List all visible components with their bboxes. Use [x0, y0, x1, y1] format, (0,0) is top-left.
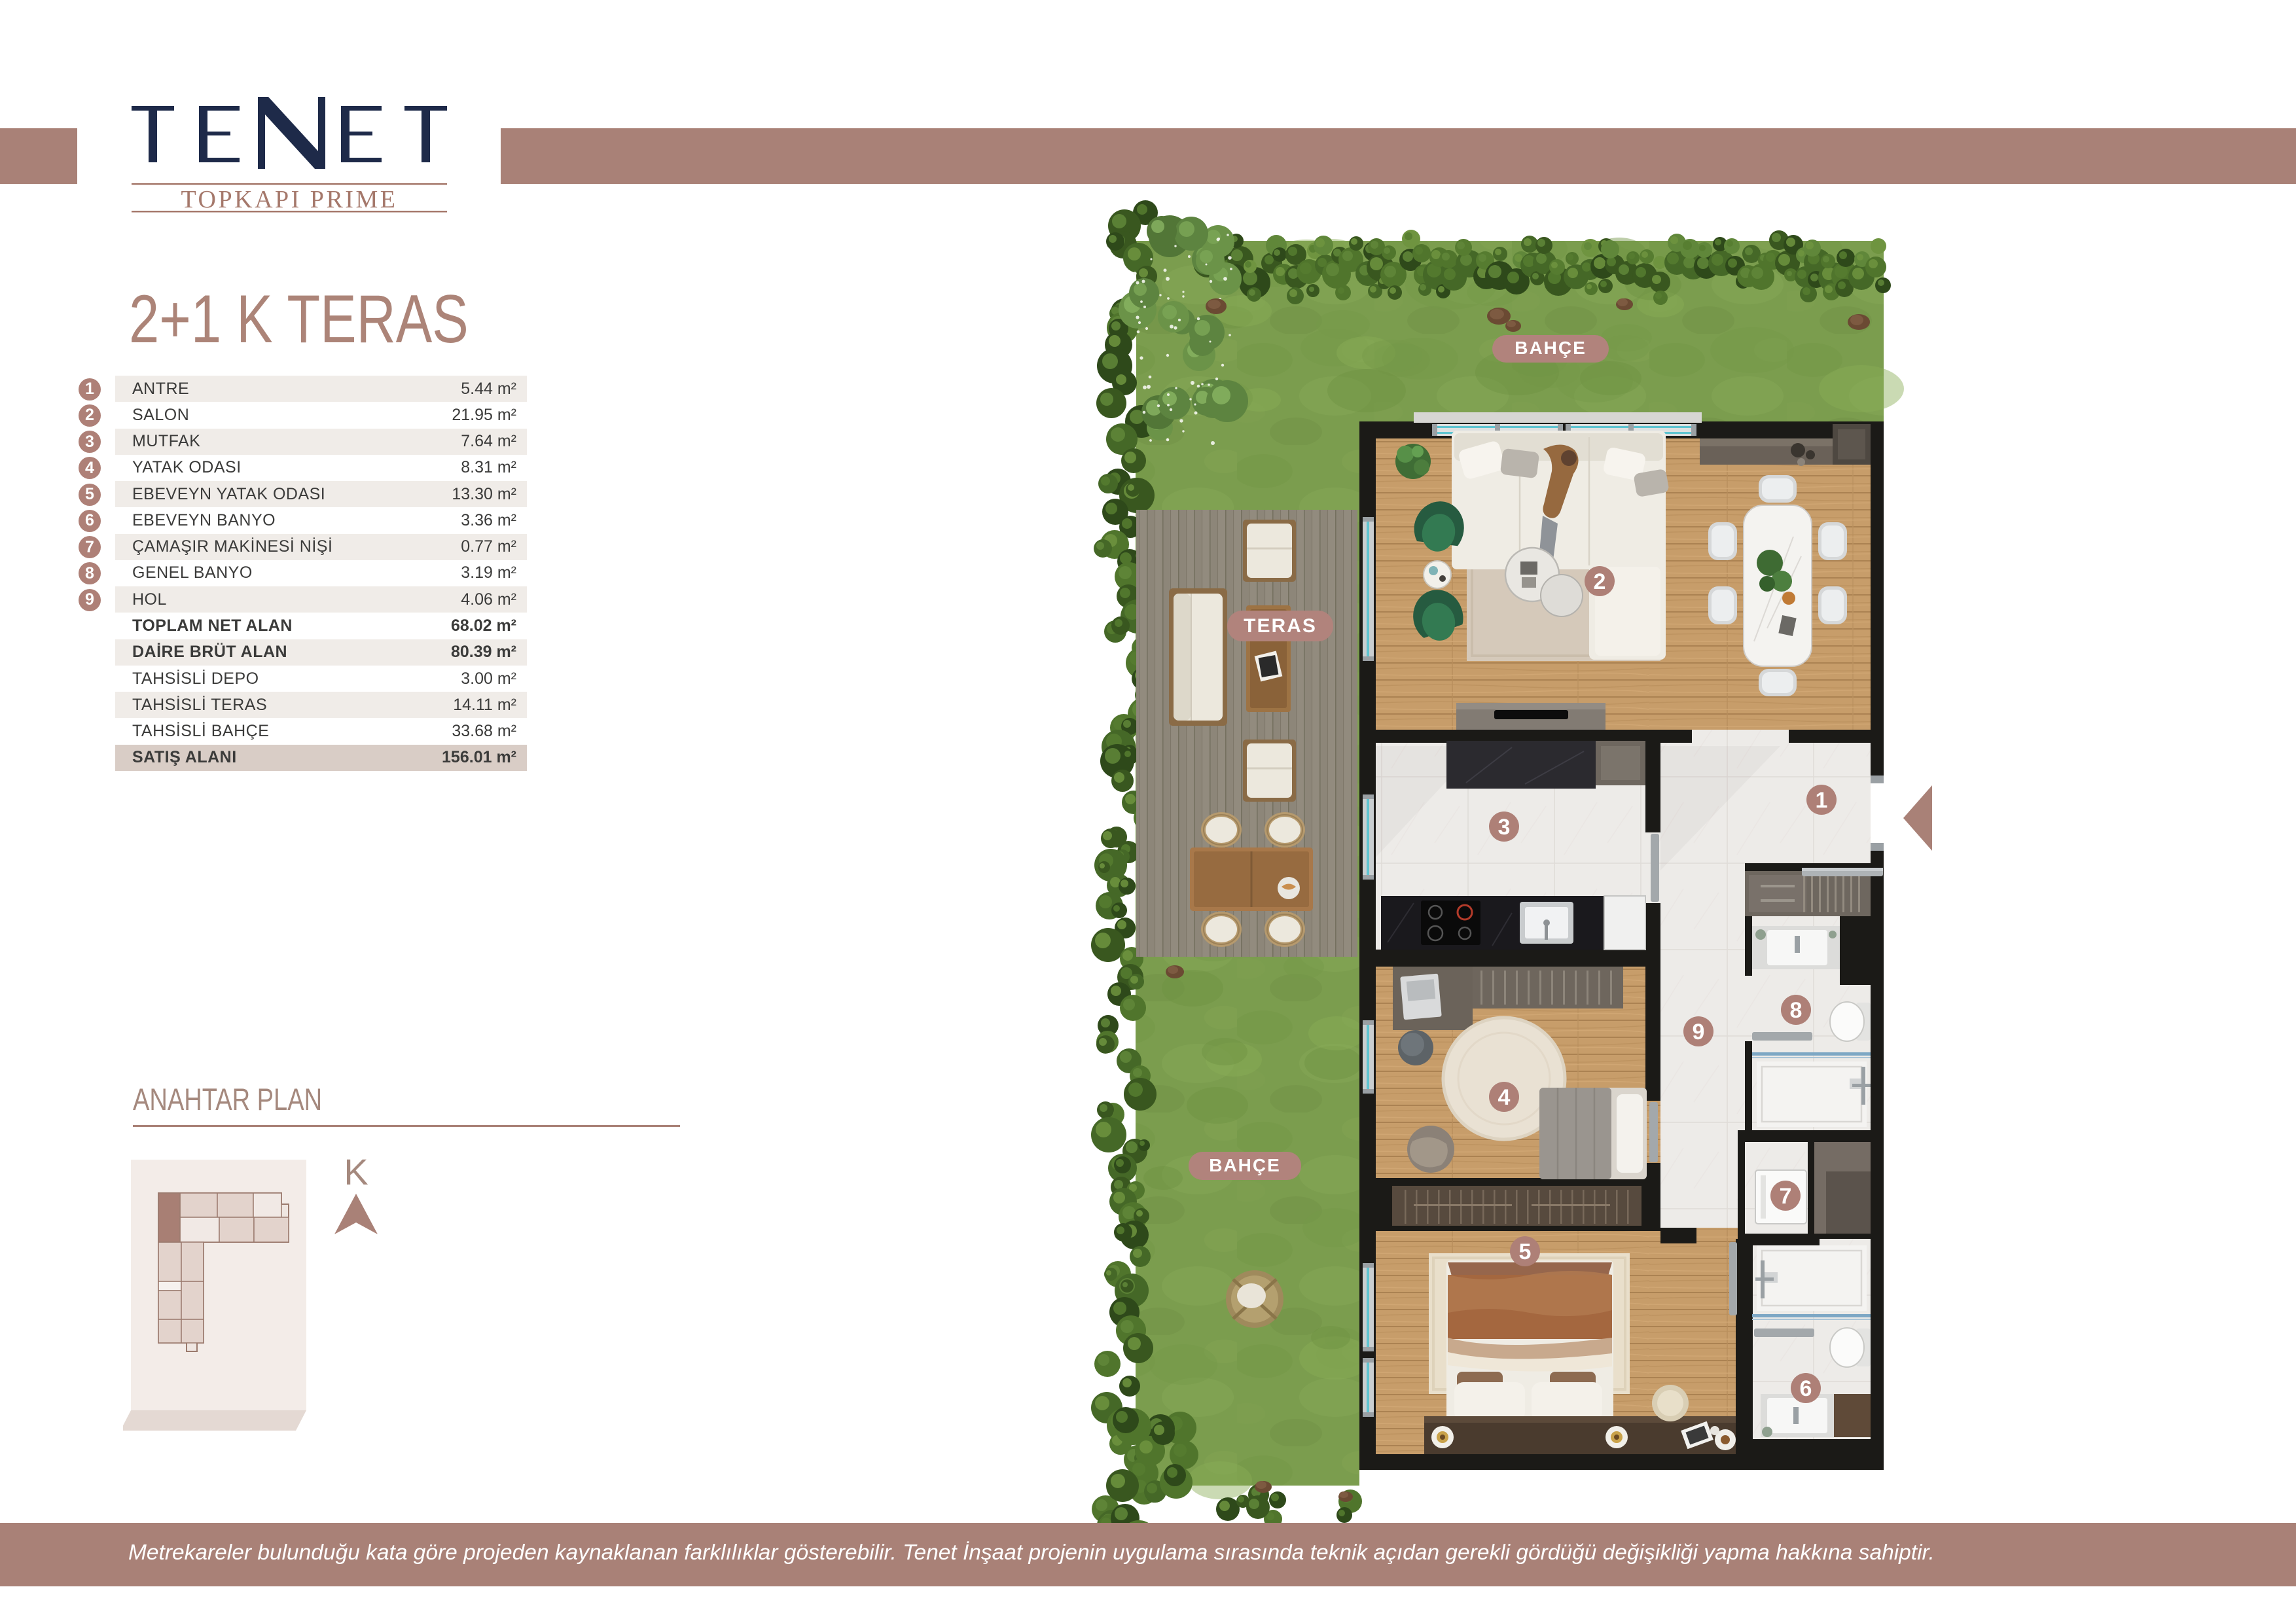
- svg-text:5: 5: [1519, 1240, 1532, 1264]
- svg-text:2: 2: [1594, 569, 1606, 594]
- svg-text:TERAS: TERAS: [1244, 615, 1317, 637]
- svg-text:BAHÇE: BAHÇE: [1515, 338, 1587, 358]
- svg-text:K: K: [344, 1151, 368, 1192]
- svg-text:3: 3: [1498, 815, 1511, 840]
- svg-text:8: 8: [1790, 998, 1803, 1023]
- svg-text:7: 7: [1780, 1184, 1792, 1209]
- svg-text:4: 4: [1498, 1085, 1511, 1110]
- svg-text:1: 1: [1816, 788, 1828, 813]
- svg-text:BAHÇE: BAHÇE: [1209, 1155, 1281, 1175]
- svg-text:TOPKAPI PRIME: TOPKAPI PRIME: [181, 186, 398, 213]
- svg-text:6: 6: [1800, 1376, 1812, 1401]
- svg-text:9: 9: [1693, 1020, 1705, 1044]
